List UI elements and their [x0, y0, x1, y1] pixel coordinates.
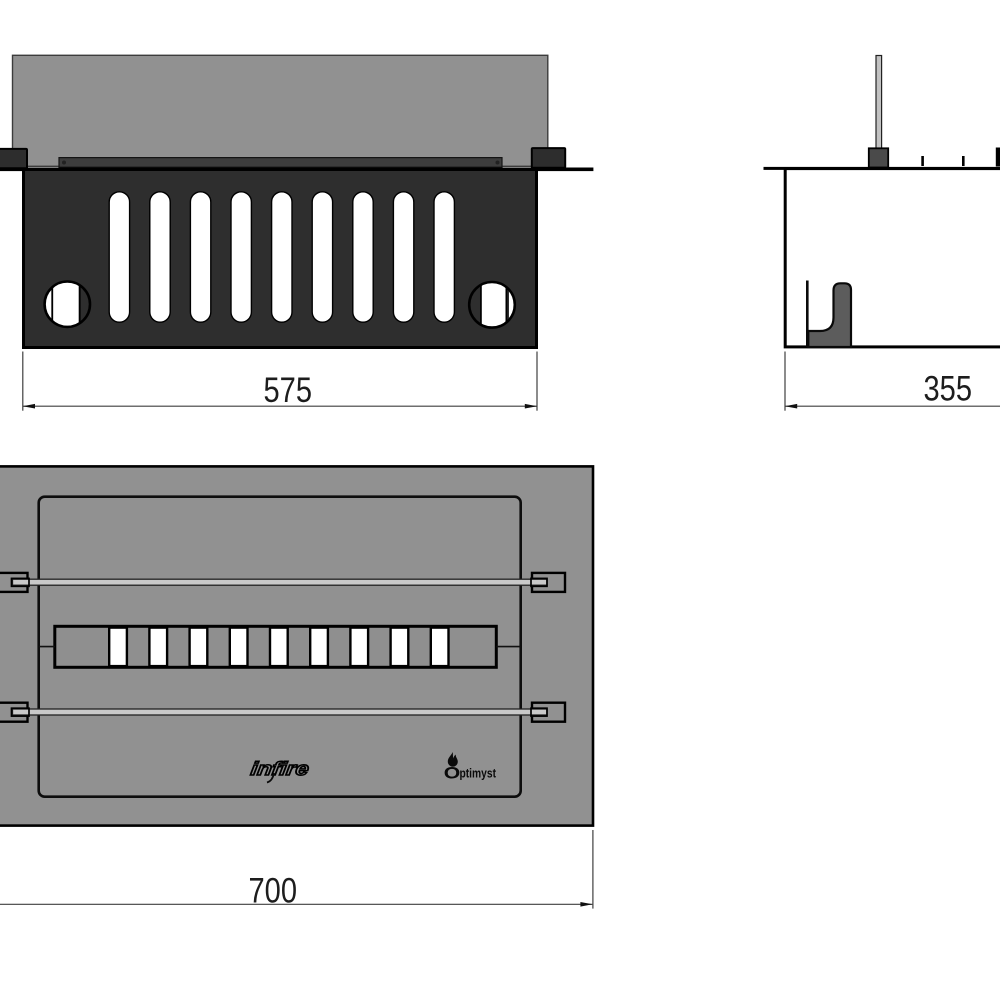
svg-text:575: 575: [264, 371, 313, 410]
svg-text:O: O: [444, 764, 461, 783]
svg-text:700: 700: [249, 872, 298, 911]
svg-text:355: 355: [924, 370, 973, 409]
svg-text:infire: infire: [249, 759, 310, 780]
svg-text:ptimyst: ptimyst: [460, 766, 497, 781]
